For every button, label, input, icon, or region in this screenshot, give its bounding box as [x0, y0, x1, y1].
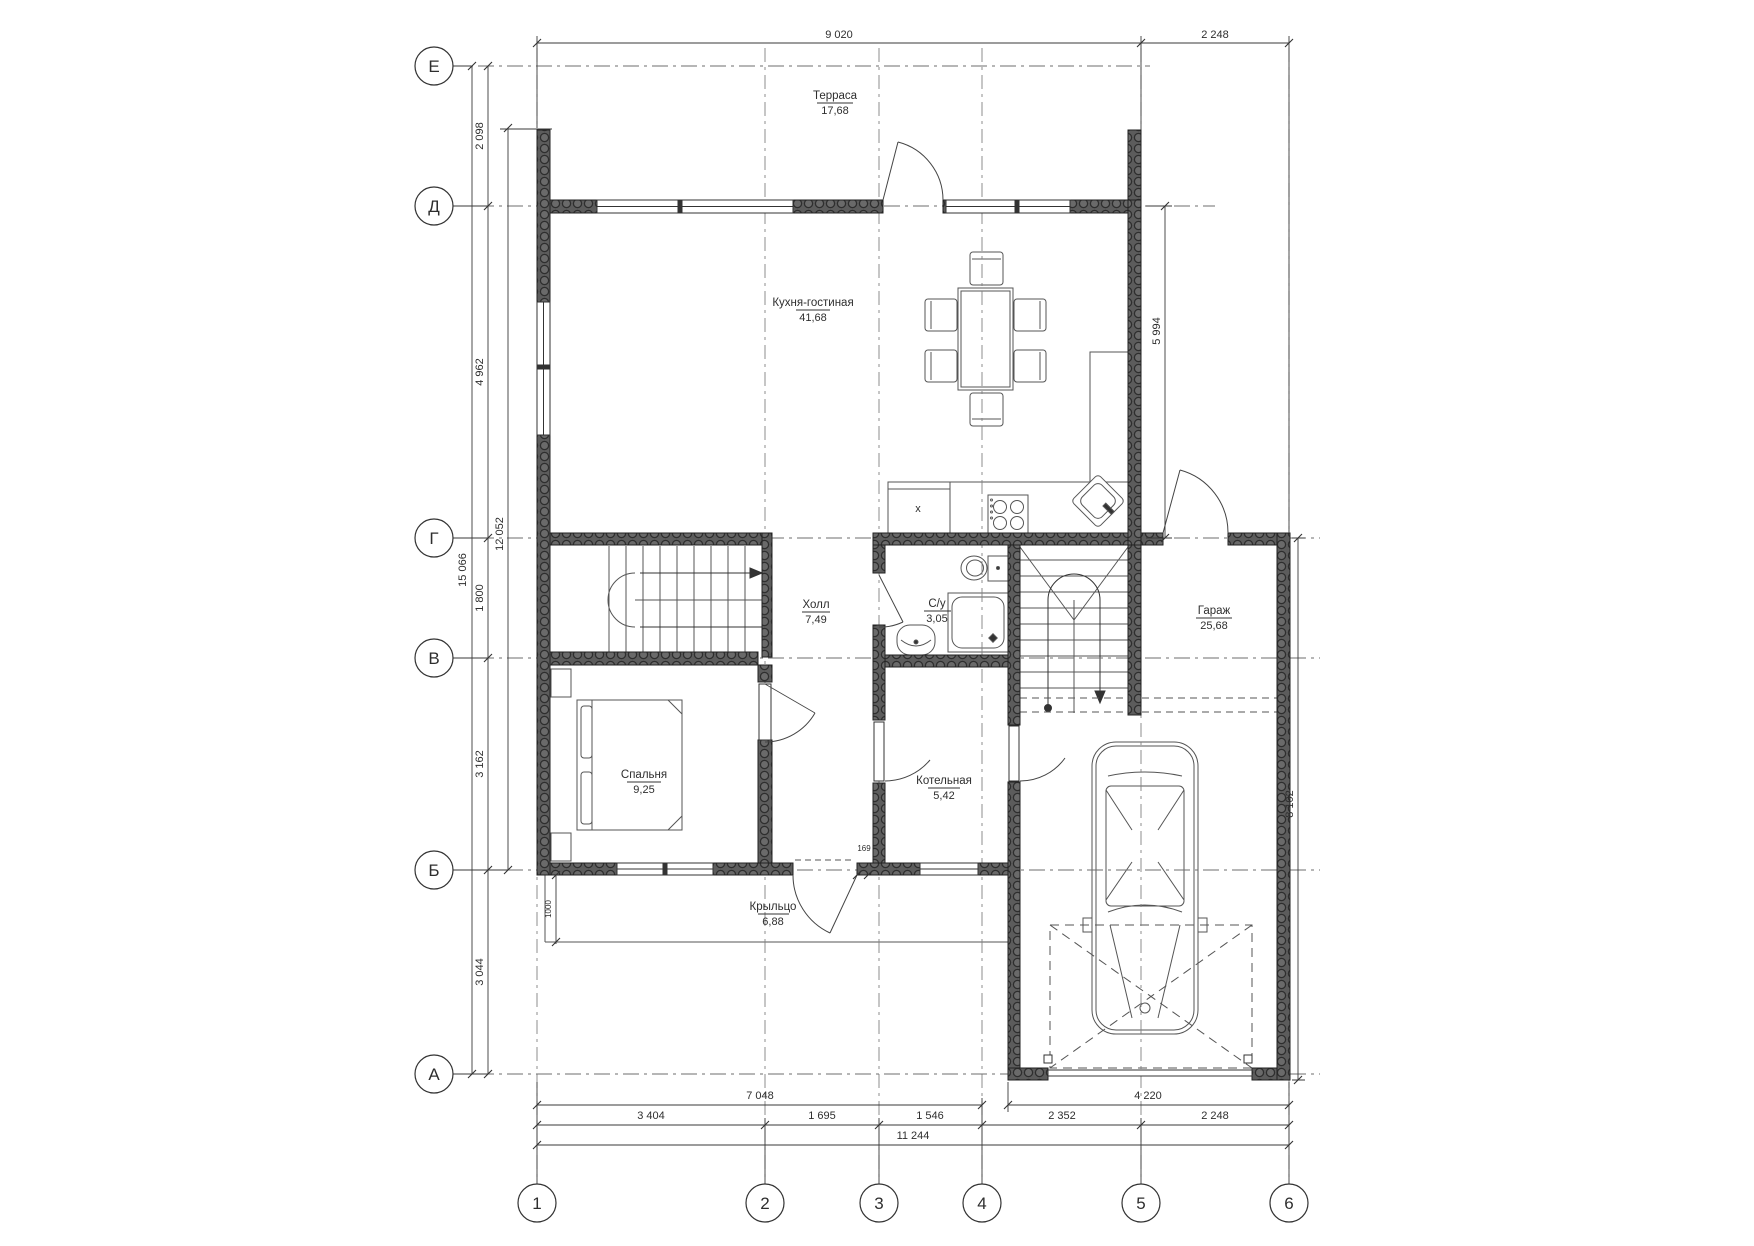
door-terrace: [883, 142, 943, 200]
wall-segment: [1141, 533, 1163, 545]
car: [1083, 742, 1207, 1034]
wall-segment: [793, 200, 883, 213]
wall-segment: [1128, 130, 1141, 200]
stair-start-dot: [1045, 705, 1052, 712]
pillow: [581, 772, 592, 824]
room-area: 17,68: [821, 105, 849, 117]
door-bedroom: [759, 684, 815, 742]
garage-gate: [1044, 1055, 1252, 1076]
room-name: С/у: [928, 598, 946, 610]
dim-porch-depth: 1000: [544, 900, 553, 918]
wall-segment: [873, 545, 885, 573]
dim-left-2: 4 962: [474, 358, 486, 386]
room-area: 9,25: [633, 784, 654, 796]
wall-segment: [1008, 782, 1020, 1068]
wall-segment: [550, 863, 617, 875]
window: [920, 863, 978, 875]
room-area: 25,68: [1200, 620, 1228, 632]
dim-bottom-1695: 1 695: [808, 1110, 836, 1122]
washbasin: [897, 625, 935, 655]
window: [537, 302, 550, 435]
wall-segment: [873, 533, 1128, 545]
wall-segment: [885, 655, 1008, 667]
room-label-boiler: Котельная 5,42: [916, 775, 972, 802]
room-area: 41,68: [799, 312, 827, 324]
kitchen-counter: [888, 352, 1128, 533]
dim-left-4: 3 162: [474, 750, 486, 778]
dim-top-1: 9 020: [825, 29, 853, 41]
room-area: 7,49: [805, 614, 826, 626]
wall-segment: [857, 863, 920, 875]
wall-segment: [550, 200, 597, 213]
room-label-hall: Холл 7,49: [802, 599, 830, 626]
wall-segment: [1128, 200, 1141, 545]
room-label-kitchen: Кухня-гостиная 41,68: [772, 297, 853, 324]
dim-bottom-4220: 4 220: [1134, 1090, 1162, 1102]
grid-column-lines: [537, 48, 1289, 1180]
room-label-garage: Гараж 25,68: [1196, 605, 1232, 632]
wall-segment: [537, 435, 550, 875]
room-label-porch: Крыльцо 6,88: [750, 901, 797, 928]
staircase-garage: [1020, 547, 1277, 713]
axis-label-col: 6: [1284, 1194, 1293, 1213]
wall-segment: [758, 740, 772, 863]
bathroom-fixtures: [897, 556, 1008, 655]
door-garage-side: [1163, 470, 1228, 533]
dim-bottom-1546: 1 546: [916, 1110, 944, 1122]
axis-label-row: Е: [428, 57, 439, 76]
pillow: [581, 706, 592, 758]
wall-segment: [758, 665, 772, 682]
dim-bottom-3404: 3 404: [637, 1110, 665, 1122]
door-bathroom: [879, 575, 903, 627]
room-area: 5,42: [933, 790, 954, 802]
axis-label-row: Б: [428, 861, 439, 880]
dim-top-2: 2 248: [1201, 29, 1229, 41]
room-name: Терраса: [813, 90, 858, 102]
wall-segment: [1070, 200, 1128, 213]
wall-segment: [873, 783, 885, 863]
axis-label-col: 3: [874, 1194, 883, 1213]
stair-return: [608, 573, 635, 627]
bed: [577, 700, 682, 830]
wall-segment: [873, 625, 885, 720]
staircase-main: [608, 546, 770, 654]
axis-label-row: В: [428, 649, 439, 668]
room-name: Спальня: [621, 769, 667, 781]
dim-bottom-total: 11 244: [897, 1130, 930, 1142]
dining-set: [925, 252, 1046, 426]
room-label-terrace: Терраса 17,68: [813, 90, 858, 117]
wall-segment: [978, 863, 1008, 875]
wall-segment: [1008, 545, 1020, 725]
wall-segment: [537, 130, 550, 302]
stair-up-arrow: [750, 568, 762, 578]
axis-label-col: 5: [1136, 1194, 1145, 1213]
dim-bottom-2352: 2 352: [1048, 1110, 1076, 1122]
bedroom-furniture: [551, 669, 682, 861]
window: [597, 200, 793, 213]
axis-label-col: 4: [977, 1194, 986, 1213]
dim-left-3: 1 800: [474, 584, 486, 612]
floor-plan-page: 9 020 2 248 2 098 4 962 1 800 3 162 3 04…: [0, 0, 1754, 1241]
room-name: Кухня-гостиная: [772, 297, 853, 309]
window: [946, 200, 1070, 213]
floor-plan-drawing: 9 020 2 248 2 098 4 962 1 800 3 162 3 04…: [0, 0, 1754, 1241]
dim-169: 169: [857, 844, 871, 853]
room-label-wc: С/у 3,05: [924, 598, 951, 625]
room-name: Гараж: [1198, 605, 1231, 617]
dim-right-2: 8 102: [1284, 790, 1296, 818]
dim-left-total1: 12 052: [494, 517, 506, 551]
parking-space-marking: [1050, 925, 1252, 1068]
floor-break-line: [1020, 698, 1277, 712]
dimension-texts: 9 020 2 248 2 098 4 962 1 800 3 162 3 04…: [457, 29, 1296, 1142]
nightstand: [551, 669, 571, 697]
room-area: 3,05: [926, 613, 947, 625]
door-boiler-right: [1009, 726, 1065, 781]
car-emblem: [1140, 1003, 1150, 1013]
nightstand: [551, 833, 571, 861]
wall-segment: [550, 533, 762, 545]
axis-label-col: 1: [532, 1194, 541, 1213]
room-name: Холл: [802, 599, 829, 611]
door-entrance: [793, 875, 857, 933]
room-name: Котельная: [916, 775, 972, 787]
wall-segment: [713, 863, 793, 875]
wall-segment: [1008, 1068, 1048, 1080]
stair-down-arrow: [1095, 691, 1105, 703]
wall-segment: [1128, 545, 1141, 715]
axis-label-col: 2: [760, 1194, 769, 1213]
dim-right-1: 5 994: [1151, 317, 1163, 345]
door-boiler-left: [874, 722, 930, 781]
dim-bottom-7048: 7 048: [746, 1090, 774, 1102]
dim-left-1: 2 098: [474, 122, 486, 150]
room-area: 6,88: [762, 916, 783, 928]
dim-bottom-2248: 2 248: [1201, 1110, 1229, 1122]
axis-label-row: Г: [429, 529, 438, 548]
dim-left-5: 3 044: [474, 958, 486, 986]
axis-label-row: Д: [428, 197, 440, 216]
wall-segment: [550, 652, 758, 665]
car-cabin: [1106, 786, 1184, 906]
window: [617, 863, 713, 875]
appliance-mark: х: [915, 503, 921, 515]
wall-segment: [1228, 533, 1277, 545]
wall-segment: [762, 533, 772, 657]
room-name: Крыльцо: [750, 901, 797, 913]
dim-left-total2: 15 066: [457, 553, 469, 587]
axis-label-row: А: [428, 1065, 440, 1084]
